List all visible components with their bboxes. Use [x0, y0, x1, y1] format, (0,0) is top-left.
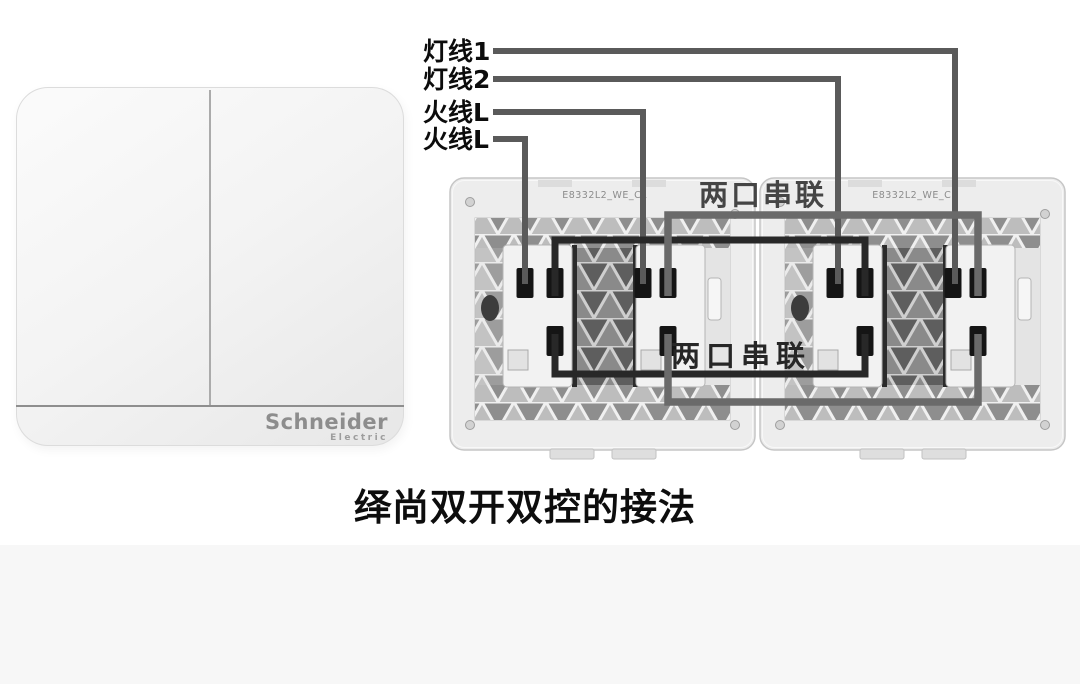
product-wiring-page: Schneider Electric E8332L2_WE_C1 [0, 0, 1080, 684]
wire-label-lamp-2: 灯线2 [423, 65, 490, 94]
wire-label-live-2: 火线L [423, 125, 489, 154]
series-link-label-top: 两口串联 [699, 178, 827, 212]
switch-back-right [760, 178, 1065, 459]
wire-label-live-1: 火线L [423, 98, 489, 127]
application-section-band: 应用场景 [0, 545, 1080, 684]
switch-back-left [450, 178, 755, 459]
series-link-label-middle: 两口串联 [671, 339, 811, 373]
diagram-caption: 绎尚双开双控的接法 [0, 477, 1050, 531]
wiring-diagram: E8332L2_WE_C1 [0, 0, 1080, 545]
wire-label-lamp-1: 灯线1 [423, 37, 490, 66]
